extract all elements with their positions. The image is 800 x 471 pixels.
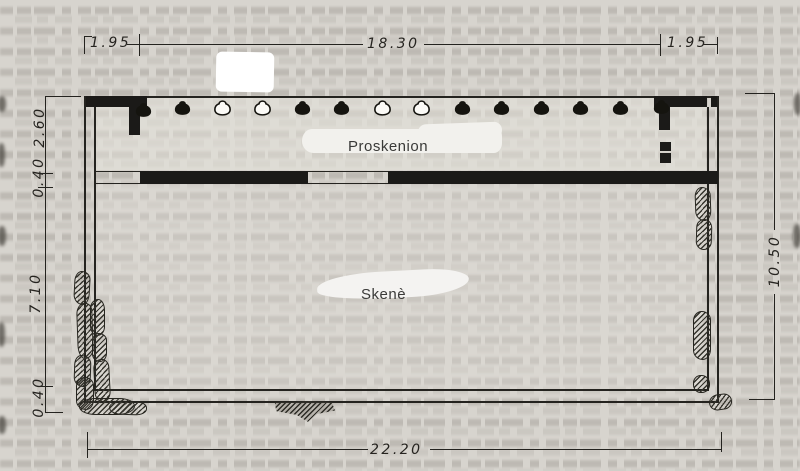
right-pier-fragment — [660, 142, 671, 151]
column-base-open — [412, 100, 431, 116]
dim-left-bottom-tick — [45, 412, 63, 413]
dim-top-right-label: 1.95 — [667, 35, 708, 51]
dim-left-top-tick — [45, 96, 81, 97]
dim-top-center-label: 18.30 — [367, 36, 420, 52]
column-base-filled — [532, 100, 551, 116]
dim-left-7-10-label: 7.10 — [28, 263, 44, 323]
right-wall-outer-line — [717, 96, 719, 403]
stone-fragment — [90, 299, 105, 336]
dim-right-line — [774, 294, 775, 400]
dim-top-line — [424, 44, 660, 45]
dim-left-0-40-bottom-label: 0.40 — [31, 367, 47, 427]
plan-front-line — [84, 96, 719, 98]
dim-top-line — [703, 44, 718, 45]
column-base-open — [213, 100, 232, 116]
column-base-open — [253, 100, 272, 116]
skene-label: Skenè — [361, 286, 406, 303]
column-base-engaged — [652, 99, 671, 115]
column-base-filled — [293, 100, 312, 116]
dim-right-line — [774, 93, 775, 230]
dim-bottom-line — [430, 449, 722, 450]
column-base-filled — [173, 100, 192, 116]
dim-bottom-line — [87, 449, 368, 450]
stone-fragment — [109, 400, 147, 415]
column-base-filled — [453, 100, 472, 116]
dim-top-tick — [660, 34, 661, 56]
stone-fragment — [73, 271, 91, 306]
right-pier-fragment — [660, 153, 671, 163]
dim-top-right-end-tick — [717, 37, 718, 54]
mid-wall-restored-bottom-line — [95, 183, 141, 184]
stone-fragment — [693, 375, 710, 393]
back-wall-inner-line — [94, 389, 709, 391]
dim-top-line — [140, 44, 363, 45]
mid-wall-preserved — [388, 171, 718, 184]
whiteout-patch-top — [216, 51, 275, 92]
stone-fragment — [92, 333, 107, 362]
stone-fragment — [694, 187, 711, 222]
back-wall-outer-line — [84, 401, 719, 403]
scan-edge-smudge — [794, 93, 800, 115]
dim-bottom-right-tick — [721, 432, 722, 452]
scanned-book-page: Proskenion Skenè 1.95 18.30 1.95 2.60 0.… — [0, 0, 800, 471]
dim-right-top-tick — [745, 93, 775, 94]
dim-right-bottom-tick — [749, 399, 775, 400]
dim-right-10-50-label: 10.50 — [767, 231, 783, 291]
scan-edge-smudge — [793, 224, 800, 248]
mid-wall-opening-bottom-line — [308, 183, 388, 184]
stone-fragment — [93, 359, 111, 403]
column-base-filled — [611, 100, 630, 116]
mid-wall-restored-top-line — [95, 171, 141, 172]
dim-top-left-label: 1.95 — [90, 35, 131, 51]
column-base-filled — [332, 100, 351, 116]
dim-top-left-end-tick — [84, 36, 85, 54]
proskenion-label: Proskenion — [348, 138, 428, 155]
column-base-filled — [492, 100, 511, 116]
dim-bottom-22-20-label: 22.20 — [370, 442, 423, 458]
stone-fragment — [693, 311, 711, 360]
column-base-filled — [571, 100, 590, 116]
mid-wall-preserved — [140, 171, 308, 184]
dim-bottom-left-tick — [87, 432, 88, 458]
stone-fragment — [695, 219, 712, 251]
mid-wall-opening-top-line — [308, 171, 388, 172]
whiteout-patch-proskenion-2 — [418, 122, 503, 141]
column-base-engaged — [134, 102, 153, 118]
column-base-open — [373, 100, 392, 116]
dim-left-0-40-label: 0.40 — [31, 147, 47, 207]
